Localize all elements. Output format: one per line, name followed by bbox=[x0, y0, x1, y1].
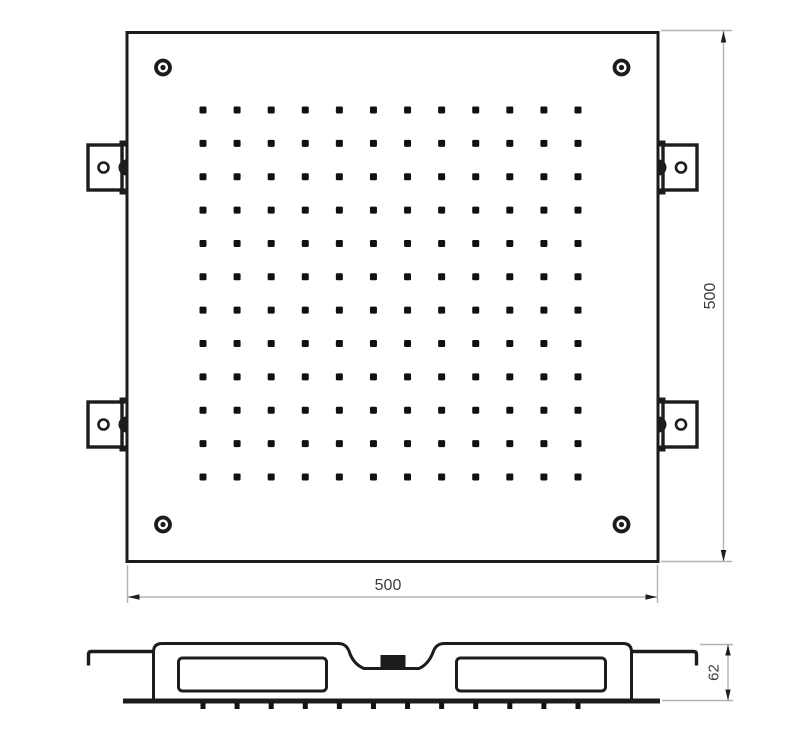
nozzle bbox=[201, 703, 206, 710]
nozzle bbox=[370, 240, 377, 247]
nozzle bbox=[404, 373, 411, 380]
corner-screw-top-left bbox=[156, 61, 170, 75]
nozzle bbox=[370, 307, 377, 314]
nozzle bbox=[438, 107, 445, 114]
corner-screw-bottom-right bbox=[615, 518, 629, 532]
nozzle bbox=[268, 440, 275, 447]
nozzle bbox=[404, 207, 411, 214]
nozzle bbox=[336, 407, 343, 414]
nozzle bbox=[574, 307, 581, 314]
nozzle bbox=[234, 207, 241, 214]
dimension-width: 500 bbox=[128, 565, 658, 603]
arrowhead-down bbox=[721, 550, 727, 562]
nozzle bbox=[268, 407, 275, 414]
nozzle bbox=[268, 107, 275, 114]
nozzle bbox=[404, 273, 411, 280]
nozzle bbox=[472, 440, 479, 447]
nozzle bbox=[540, 140, 547, 147]
arrowhead-up bbox=[725, 645, 730, 656]
bracket-hole bbox=[99, 420, 109, 430]
nozzle bbox=[370, 207, 377, 214]
nozzle bbox=[540, 473, 547, 480]
bracket-hole bbox=[676, 163, 686, 173]
nozzle bbox=[302, 340, 309, 347]
nozzle bbox=[234, 473, 241, 480]
nozzle bbox=[336, 473, 343, 480]
nozzle bbox=[370, 373, 377, 380]
nozzle bbox=[574, 240, 581, 247]
nozzle bbox=[268, 207, 275, 214]
nozzle bbox=[472, 307, 479, 314]
nozzle bbox=[336, 173, 343, 180]
nozzle bbox=[404, 307, 411, 314]
nozzle bbox=[336, 107, 343, 114]
nozzle bbox=[540, 273, 547, 280]
nozzle bbox=[200, 240, 207, 247]
nozzle bbox=[234, 340, 241, 347]
nozzle bbox=[540, 207, 547, 214]
nozzle bbox=[200, 207, 207, 214]
nozzle bbox=[370, 107, 377, 114]
nozzle bbox=[404, 240, 411, 247]
corner-screw-bottom-left bbox=[156, 518, 170, 532]
nozzle bbox=[472, 107, 479, 114]
nozzle bbox=[268, 373, 275, 380]
nozzle bbox=[302, 107, 309, 114]
nozzle bbox=[574, 407, 581, 414]
arrowhead-down bbox=[725, 690, 730, 701]
bracket-hole bbox=[676, 420, 686, 430]
nozzle bbox=[302, 440, 309, 447]
nozzle bbox=[235, 703, 240, 710]
nozzle bbox=[574, 440, 581, 447]
nozzle bbox=[540, 173, 547, 180]
nozzle bbox=[336, 240, 343, 247]
nozzle bbox=[506, 307, 513, 314]
nozzle bbox=[438, 407, 445, 414]
arrowhead-right bbox=[646, 594, 658, 600]
nozzle bbox=[404, 473, 411, 480]
section-view bbox=[89, 644, 697, 710]
nozzle bbox=[540, 340, 547, 347]
nozzle bbox=[574, 273, 581, 280]
nozzle bbox=[200, 273, 207, 280]
nozzle bbox=[268, 173, 275, 180]
nozzle bbox=[268, 140, 275, 147]
nozzle bbox=[438, 173, 445, 180]
dimension-height-label: 500 bbox=[702, 283, 719, 310]
nozzle bbox=[472, 273, 479, 280]
nozzle bbox=[200, 473, 207, 480]
nozzle bbox=[575, 703, 580, 710]
mounting-bracket-right-bottom bbox=[658, 398, 698, 452]
nozzle bbox=[472, 340, 479, 347]
nozzle bbox=[541, 703, 546, 710]
nozzle bbox=[302, 140, 309, 147]
nozzle bbox=[507, 703, 512, 710]
nozzle bbox=[438, 273, 445, 280]
nozzle bbox=[574, 340, 581, 347]
nozzle bbox=[574, 473, 581, 480]
nozzle bbox=[200, 140, 207, 147]
nozzle bbox=[506, 373, 513, 380]
nozzle bbox=[234, 273, 241, 280]
mounting-bracket-left-bottom bbox=[88, 398, 128, 452]
nozzle bbox=[370, 407, 377, 414]
nozzle bbox=[302, 240, 309, 247]
nozzle bbox=[438, 440, 445, 447]
nozzle bbox=[234, 140, 241, 147]
nozzle bbox=[370, 473, 377, 480]
nozzle bbox=[438, 473, 445, 480]
nozzle bbox=[574, 173, 581, 180]
nozzle bbox=[472, 373, 479, 380]
nozzle bbox=[439, 703, 444, 710]
nozzle bbox=[404, 407, 411, 414]
dimension-width-label: 500 bbox=[375, 577, 402, 594]
nozzle bbox=[370, 140, 377, 147]
bracket-hole bbox=[99, 163, 109, 173]
nozzle bbox=[438, 373, 445, 380]
nozzle bbox=[506, 140, 513, 147]
nozzle bbox=[200, 107, 207, 114]
nozzle bbox=[506, 207, 513, 214]
nozzle bbox=[371, 703, 376, 710]
nozzle bbox=[438, 207, 445, 214]
nozzle bbox=[336, 307, 343, 314]
nozzle bbox=[540, 240, 547, 247]
nozzle bbox=[269, 703, 274, 710]
nozzle bbox=[506, 240, 513, 247]
nozzle bbox=[506, 473, 513, 480]
nozzle bbox=[438, 307, 445, 314]
inlet-port bbox=[381, 655, 406, 670]
nozzle bbox=[200, 407, 207, 414]
arrowhead-left bbox=[128, 594, 140, 600]
nozzle bbox=[234, 440, 241, 447]
nozzle bbox=[506, 440, 513, 447]
nozzle bbox=[302, 307, 309, 314]
nozzle bbox=[472, 207, 479, 214]
nozzle bbox=[404, 340, 411, 347]
nozzle bbox=[405, 703, 410, 710]
nozzle bbox=[302, 173, 309, 180]
nozzle bbox=[438, 240, 445, 247]
nozzle bbox=[370, 340, 377, 347]
nozzle bbox=[268, 307, 275, 314]
nozzle bbox=[268, 273, 275, 280]
nozzle bbox=[200, 440, 207, 447]
nozzle bbox=[438, 340, 445, 347]
nozzle bbox=[336, 140, 343, 147]
nozzle bbox=[302, 273, 309, 280]
nozzle bbox=[540, 407, 547, 414]
nozzle bbox=[370, 173, 377, 180]
nozzle bbox=[370, 440, 377, 447]
nozzle bbox=[200, 340, 207, 347]
nozzle bbox=[574, 107, 581, 114]
nozzle bbox=[472, 140, 479, 147]
nozzle bbox=[336, 340, 343, 347]
corner-screw-top-right bbox=[615, 61, 629, 75]
nozzle bbox=[404, 140, 411, 147]
mounting-bracket-right-top bbox=[658, 141, 698, 195]
nozzle bbox=[234, 373, 241, 380]
nozzle bbox=[540, 373, 547, 380]
nozzle bbox=[506, 340, 513, 347]
nozzle bbox=[302, 407, 309, 414]
shower-head-drawing: 500 500 62 bbox=[0, 0, 800, 737]
water-channel-left bbox=[179, 658, 327, 691]
dimension-depth-label: 62 bbox=[705, 664, 722, 681]
left-hook bbox=[89, 652, 154, 666]
nozzle bbox=[234, 107, 241, 114]
nozzle bbox=[472, 240, 479, 247]
nozzle bbox=[438, 140, 445, 147]
nozzle bbox=[574, 373, 581, 380]
nozzle bbox=[574, 207, 581, 214]
water-channel-right bbox=[457, 658, 606, 691]
nozzle bbox=[336, 373, 343, 380]
nozzle bbox=[506, 273, 513, 280]
nozzle bbox=[302, 207, 309, 214]
nozzle bbox=[404, 173, 411, 180]
nozzle bbox=[268, 473, 275, 480]
technical-drawing-page: 500 500 62 bbox=[0, 0, 800, 737]
nozzle bbox=[200, 307, 207, 314]
nozzle bbox=[540, 107, 547, 114]
nozzle bbox=[472, 173, 479, 180]
nozzle bbox=[234, 240, 241, 247]
nozzle bbox=[268, 340, 275, 347]
nozzle bbox=[337, 703, 342, 710]
nozzle bbox=[473, 703, 478, 710]
dimension-height: 500 bbox=[661, 31, 732, 562]
nozzle bbox=[268, 240, 275, 247]
nozzle bbox=[472, 473, 479, 480]
nozzle bbox=[370, 273, 377, 280]
nozzle bbox=[336, 207, 343, 214]
mounting-bracket-left-top bbox=[88, 141, 128, 195]
nozzle bbox=[336, 440, 343, 447]
nozzle bbox=[540, 440, 547, 447]
top-view bbox=[88, 33, 697, 562]
nozzle bbox=[302, 373, 309, 380]
nozzle bbox=[200, 373, 207, 380]
nozzle bbox=[404, 107, 411, 114]
nozzle bbox=[303, 703, 308, 710]
right-hook bbox=[632, 652, 697, 666]
nozzle bbox=[506, 107, 513, 114]
arrowhead-up bbox=[721, 31, 727, 43]
nozzle bbox=[200, 173, 207, 180]
nozzle bbox=[302, 473, 309, 480]
nozzle bbox=[574, 140, 581, 147]
nozzle bbox=[404, 440, 411, 447]
nozzle bbox=[506, 407, 513, 414]
nozzle bbox=[336, 273, 343, 280]
nozzle bbox=[472, 407, 479, 414]
nozzle bbox=[506, 173, 513, 180]
nozzle bbox=[234, 407, 241, 414]
nozzle bbox=[234, 307, 241, 314]
nozzle bbox=[234, 173, 241, 180]
nozzle bbox=[540, 307, 547, 314]
